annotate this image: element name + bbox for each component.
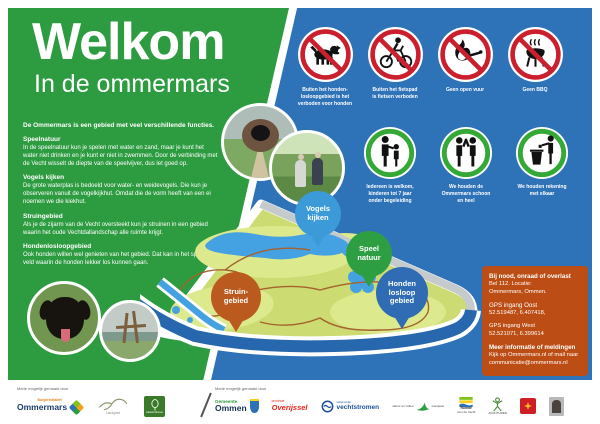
bird-sketch-icon [98, 396, 128, 412]
natuur-en-milieu-logo: natuur en milieu overijssel [392, 401, 444, 412]
no-cycling-icon [367, 26, 424, 83]
landgoed-logo: Landgoed [98, 396, 128, 416]
ommermars-diamond-icon [69, 400, 85, 416]
landgoed-logo-text: Landgoed [106, 412, 120, 416]
gemeente-text: Ommen [215, 404, 247, 413]
gemeente-ommen-text: Gemeente Ommen [215, 399, 247, 413]
person-with-bin-icon [515, 126, 569, 180]
adult-and-child-icon [363, 126, 417, 180]
footer-logos-right: Gemeente Ommen provincie Overijssel wate… [215, 394, 564, 418]
gps-west-coords: 52.521071, 6.399614 [489, 331, 581, 339]
guideline-caption: We houden de Ommermars schoon en heel [442, 184, 491, 204]
welcome-sign-poster: Welkom In de ommermars De Ommermars is e… [0, 0, 600, 424]
emergency-title: Bij nood, onraad of overlast [489, 273, 581, 281]
footer-divider [200, 393, 212, 418]
staatsbosbeheer-logo: staatsbosbeheer [144, 396, 165, 417]
credit-label-left: Mede mogelijk gemaakt door [17, 386, 68, 391]
trail [251, 152, 269, 178]
pin-tail [361, 274, 377, 287]
high-five-icon [439, 126, 493, 180]
rule-no-cycling: Buiten het fietspad is fietsen verboden [360, 26, 430, 107]
provincie-text: Overijssel [272, 404, 308, 412]
section-body: In de speelnatuur kun je spelen met wate… [23, 144, 219, 168]
guideline-caption: Iedereen is welkom, kinderen tot 7 jaar … [366, 184, 413, 204]
tree-icon [148, 398, 162, 412]
map-pin-hondenlosloopgebied: Honden losloop gebied [376, 267, 428, 329]
walker-figure [312, 158, 323, 185]
no-bbq-icon [507, 26, 564, 83]
ommermars-logo: Burgerinitiatief Ommermars [17, 399, 82, 414]
prohibition-signs-row: Buiten het honden- losloopgebied is het … [290, 26, 570, 107]
no-open-fire-icon [437, 26, 494, 83]
rule-caption: Geen open vuur [446, 87, 484, 94]
ommen-crest-icon [250, 399, 259, 413]
emergency-info-box: Bij nood, onraad of overlast Bel 112. Lo… [482, 266, 588, 376]
guideline-everyone-welcome: Iedereen is welkom, kinderen tot 7 jaar … [352, 126, 428, 204]
staatsbosbeheer-logo-text: staatsbosbeheer [146, 412, 163, 414]
ruimte-voor-de-vecht-logo: Ruimte voor de Vecht [457, 397, 475, 414]
wood-beam [116, 324, 146, 329]
pin-label: Honden losloop gebied [376, 267, 428, 319]
heraldic-ornament-icon [524, 402, 532, 410]
egg-hide-window [251, 125, 270, 141]
pin-tail [310, 234, 326, 247]
guideline-keep-clean: We houden de Ommermars schoon en heel [428, 126, 504, 204]
avonturen-logo: AVONTUREN [488, 397, 507, 415]
pin-tail [228, 319, 244, 332]
rule-no-bbq: Geen BBQ [500, 26, 570, 107]
pin-label: Vogels kijken [295, 191, 341, 237]
provincie-overijssel-logo: provincie Overijssel [272, 400, 308, 412]
jumping-figure-icon [489, 397, 506, 412]
poster-title: Welkom [32, 16, 224, 68]
emergency-body: Bel 112. Locatie: Ommermars, Ommen. [489, 281, 581, 297]
gemeente-ommen-logo: Gemeente Ommen [215, 399, 259, 413]
guideline-caption: We houden rekening met elkaar [517, 184, 566, 198]
play-structure-photo [99, 300, 161, 362]
credit-label-right: Mede mogelijk gemaakt door [215, 386, 266, 391]
natuur-milieu-text-2: overijssel [432, 404, 445, 408]
walker-figure [295, 160, 306, 187]
guideline-signs-row: Iedereen is welkom, kinderen tot 7 jaar … [352, 126, 580, 204]
pin-tail [394, 316, 410, 329]
rule-caption: Buiten het fietspad is fietsen verboden [372, 87, 418, 101]
rule-caption: Geen BBQ [522, 87, 547, 94]
dog-tongue [61, 329, 70, 342]
vechtstromen-text-block: waterschap vechtstromen [337, 401, 380, 411]
portrait-logo [549, 397, 564, 416]
no-dogs-icon [297, 26, 354, 83]
footer-logos-left: Burgerinitiatief Ommermars Landgoed staa… [17, 394, 165, 418]
water-wave-icon [321, 400, 334, 413]
vechtstromen-logo: waterschap vechtstromen [321, 400, 380, 413]
red-heraldic-logo [520, 398, 536, 414]
dog-photo [27, 281, 101, 355]
section-title: Speelnatuur [23, 136, 219, 143]
rule-caption: Buiten het honden- losloopgebied is het … [298, 87, 352, 107]
rule-no-dogs: Buiten het honden- losloopgebied is het … [290, 26, 360, 107]
guideline-consideration: We houden rekening met elkaar [504, 126, 580, 204]
rule-no-open-fire: Geen open vuur [430, 26, 500, 107]
map-pin-vogels-kijken: Vogels kijken [295, 191, 341, 247]
more-info-body: Kijk op Ommermars.nl of mail naar commun… [489, 352, 581, 368]
ruimte-text-2: voor de Vecht [457, 411, 475, 414]
gps-east-label: GPS ingang Oost [489, 302, 581, 310]
section-title: Vogels kijken [23, 174, 219, 181]
map-pin-struingebied: Struin- gebied [211, 272, 261, 332]
green-swoosh-icon [416, 401, 430, 412]
more-info-title: Meer informatie of meldingen [489, 344, 581, 352]
poster-subtitle: In de ommermars [34, 72, 230, 97]
gps-west-label: GPS ingang West [489, 323, 581, 331]
ommermars-logo-text: Ommermars [17, 403, 67, 412]
avonturen-text: AVONTUREN [488, 412, 507, 415]
natuur-milieu-text: natuur en milieu [392, 404, 413, 408]
intro-text: De Ommermars is een gebied met veel vers… [23, 122, 219, 130]
gps-east-coords: 52.519487, 6.407418, [489, 310, 581, 318]
section-speelnatuur: Speelnatuur In de speelnatuur kun je spe… [23, 136, 219, 168]
pin-label: Struin- gebied [211, 272, 261, 322]
vechtstromen-text: vechtstromen [337, 404, 380, 411]
